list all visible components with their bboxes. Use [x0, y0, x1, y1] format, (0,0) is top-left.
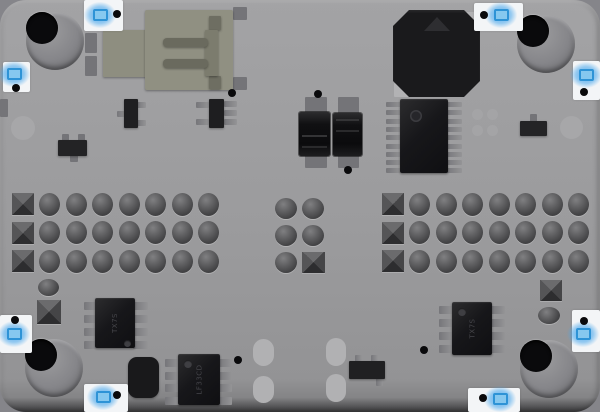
test-point [420, 346, 428, 354]
touch-indicator [484, 386, 516, 412]
header-right-pin-pad[interactable] [515, 193, 536, 216]
soic8-pin-row-pin [439, 306, 453, 314]
chip-marking: LF33CD [174, 359, 225, 401]
soic8-pin-row-pin [133, 302, 148, 310]
header-left-pin-pad[interactable] [39, 221, 60, 244]
via [472, 125, 483, 136]
header-left-pin-pad[interactable] [172, 250, 193, 273]
header-right-pin-pad[interactable] [515, 221, 536, 244]
test-point [344, 166, 352, 174]
via-ring-left-edge [11, 116, 35, 140]
pad-square[interactable] [540, 280, 562, 301]
pin1-dot [184, 360, 192, 368]
buzzer-triangle-icon [424, 17, 450, 31]
marker-dot [113, 10, 121, 18]
oval-pad [253, 376, 274, 403]
tssop-pin-row-right-pin [446, 168, 462, 173]
tssop-pin-row-right-pin [446, 119, 462, 124]
header-left-pin-pad[interactable] [172, 221, 193, 244]
soic8-pin-row-pin [491, 306, 505, 314]
mount-hole-top-left [26, 12, 84, 70]
oval-pad [326, 338, 346, 366]
usb-contact [163, 38, 208, 47]
soic8-pin-row-pin [165, 372, 179, 380]
header-right-pin-pad[interactable] [542, 193, 563, 216]
sot23-6-pad [224, 101, 237, 107]
soic8-pin-row-pin [491, 345, 505, 353]
marker-top[interactable] [84, 0, 123, 31]
via [487, 125, 498, 136]
via [472, 109, 483, 120]
usb-contact [163, 59, 208, 68]
usb-connector-tab [103, 30, 147, 77]
header-left-pin-pad[interactable] [145, 250, 166, 273]
pad-dome[interactable] [275, 198, 297, 219]
touch-indicator-core [576, 328, 591, 340]
pad-dome[interactable] [275, 252, 297, 273]
crystal-component[interactable] [128, 357, 159, 398]
pad-dome[interactable] [302, 198, 324, 219]
via [487, 109, 498, 120]
touch-indicator [485, 2, 517, 28]
sot23-pad [376, 378, 383, 386]
soic8-ic-left[interactable]: TX7S [95, 298, 135, 348]
tssop-pin-row-right-pin [446, 152, 462, 157]
pad-dome[interactable] [302, 225, 324, 246]
header-right-pin-pad[interactable] [409, 193, 430, 216]
resistor-tab [70, 155, 78, 162]
touch-indicator-core [493, 393, 508, 405]
soic8-pin-row-pin [218, 372, 232, 380]
marker-right-lower[interactable] [572, 310, 600, 352]
marker-dot [12, 84, 20, 92]
header-right-square-pad[interactable] [382, 222, 404, 244]
marker-dot [11, 316, 19, 324]
chip-marking: TX7S [446, 309, 499, 349]
tssop-pin-row-right-pin [446, 127, 462, 132]
marker-dot [580, 317, 588, 325]
header-right-pin-pad[interactable] [515, 250, 536, 273]
soic8-pin-row-pin [491, 332, 505, 340]
header-right-square-pad[interactable] [382, 250, 404, 272]
marker-top-right[interactable] [474, 3, 523, 31]
cap-polarity-stripes [302, 135, 327, 148]
mount-hole-top-left-bore [26, 12, 58, 44]
test-point [314, 90, 322, 98]
soic8-pin-row-pin [165, 384, 179, 392]
pin1-dot [458, 308, 466, 316]
usb-shield-pad [233, 7, 247, 20]
smd-resistor-left[interactable] [58, 140, 87, 156]
header-left-square-pad[interactable] [12, 193, 34, 215]
header-right-pin-pad[interactable] [489, 250, 510, 273]
soic8-pin-row-pin [133, 315, 148, 323]
soic8-pin-row-pin [133, 341, 148, 349]
header-left-pin-pad[interactable] [66, 250, 87, 273]
pad-square[interactable] [37, 300, 61, 324]
test-point [228, 89, 236, 97]
sot23-6-pad [196, 102, 209, 108]
capacitor-left[interactable] [299, 112, 330, 156]
tssop-pin-row-right-pin [446, 135, 462, 140]
header-right-pin-pad[interactable] [462, 250, 483, 273]
via-ring-right-edge [560, 116, 583, 139]
capacitor-right[interactable] [333, 113, 362, 156]
header-right-pin-pad[interactable] [489, 193, 510, 216]
header-right-square-pad[interactable] [382, 193, 404, 215]
header-right-pin-pad[interactable] [436, 250, 457, 273]
header-left-pin-pad[interactable] [66, 221, 87, 244]
soic8-ic-right[interactable]: TX7S [452, 302, 492, 355]
sot23-6-pad [224, 119, 237, 125]
tssop-pin-row-right-pin [446, 110, 462, 115]
soic8-pin-row-pin [165, 359, 179, 367]
header-right-pin-pad[interactable] [568, 221, 589, 244]
soic8-pin-row-pin [218, 384, 232, 392]
header-right-pin-pad[interactable] [409, 250, 430, 273]
cap-polarity-stripes [336, 119, 359, 132]
tssop-pin-row-right-pin [446, 144, 462, 149]
pad-square[interactable] [302, 252, 325, 273]
header-left-pin-pad[interactable] [119, 193, 140, 216]
usb-shield-pad [85, 56, 97, 76]
sot23-6-pad [196, 119, 209, 125]
soic8-pin-row-pin [133, 328, 148, 336]
touch-indicator [0, 321, 30, 347]
header-left-pin-pad[interactable] [145, 193, 166, 216]
chip-marking: TX7S [90, 303, 140, 343]
mount-hole-bottom-right-bore [520, 340, 552, 372]
pad-dome[interactable] [275, 225, 297, 246]
soic8-pin-row-pin [218, 359, 232, 367]
header-left-pin-pad[interactable] [172, 193, 193, 216]
soic8-ic-bottom[interactable]: LF33CD [178, 354, 220, 405]
header-left-pin-pad[interactable] [39, 250, 60, 273]
soic8-pin-row-pin [439, 332, 453, 340]
tssop-pin-row-right-pin [446, 102, 462, 107]
marker-left-upper[interactable] [3, 62, 30, 92]
header-left-pin-pad[interactable] [92, 193, 113, 216]
sot23-bottom[interactable] [349, 361, 385, 379]
touch-indicator-core [93, 9, 108, 21]
header-left-pin-pad[interactable] [119, 250, 140, 273]
pcb-board: TX7SLF33CDTX7S [0, 0, 600, 412]
header-left-pin-pad[interactable] [198, 250, 219, 273]
usb-shield-pad [233, 77, 247, 90]
marker-bottom-right[interactable] [468, 388, 520, 412]
soic8-pin-row-pin [491, 319, 505, 327]
header-right-pin-pad[interactable] [489, 221, 510, 244]
mount-hole-bottom-right [520, 340, 578, 398]
soic8-pin-row-pin [218, 397, 232, 405]
marker-dot [113, 391, 121, 399]
header-left-square-pad[interactable] [12, 250, 34, 272]
buzzer[interactable] [393, 10, 480, 97]
oval-pad [326, 374, 346, 402]
touch-indicator [84, 2, 116, 28]
header-right-pin-pad[interactable] [462, 193, 483, 216]
header-left-pin-pad[interactable] [39, 193, 60, 216]
sot23-transistor[interactable] [124, 99, 138, 128]
header-left-square-pad[interactable] [12, 222, 34, 244]
sot23-6-pad [224, 110, 237, 116]
header-left-pin-pad[interactable] [198, 221, 219, 244]
touch-indicator [570, 62, 600, 88]
mount-hole-top-right [517, 15, 575, 73]
marker-left-lower[interactable] [0, 315, 32, 353]
touch-indicator-core [494, 9, 509, 21]
header-right-pin-pad[interactable] [542, 250, 563, 273]
header-right-pin-pad[interactable] [568, 193, 589, 216]
header-right-pin-pad[interactable] [542, 221, 563, 244]
sot23-pad [137, 120, 146, 126]
usb-prong [209, 76, 221, 89]
edge-pad-left [0, 99, 8, 117]
smd-resistor-right[interactable] [520, 121, 547, 136]
mount-hole-bottom-left [25, 339, 83, 397]
touch-indicator-core [96, 391, 111, 403]
header-left-pin-pad[interactable] [92, 221, 113, 244]
soic8-pin-row-pin [439, 345, 453, 353]
header-left-pin-pad[interactable] [66, 193, 87, 216]
header-left-pin-pad[interactable] [145, 221, 166, 244]
header-right-pin-pad[interactable] [436, 193, 457, 216]
tssop-pin-row-right-pin [446, 160, 462, 165]
pcb-render-stage: TX7SLF33CDTX7S [0, 0, 600, 412]
touch-indicator-core [7, 328, 22, 340]
header-left-pin-pad[interactable] [119, 221, 140, 244]
tssop-ic[interactable] [400, 99, 448, 173]
header-left-pin-pad[interactable] [198, 193, 219, 216]
capacitor-pad [338, 97, 359, 114]
touch-indicator-core [579, 69, 594, 81]
sot23-pad [137, 102, 146, 108]
oval-pad [253, 339, 274, 366]
soic8-pin-row-pin [165, 397, 179, 405]
marker-right-upper[interactable] [573, 61, 600, 100]
pin1-dot [124, 340, 131, 347]
pin1-dot [410, 110, 422, 122]
pad-dome[interactable] [538, 307, 560, 324]
header-right-pin-pad[interactable] [436, 221, 457, 244]
usb-tongue-edge [205, 30, 218, 76]
usb-shield-pad [85, 33, 97, 53]
header-right-pin-pad[interactable] [462, 221, 483, 244]
marker-bottom-left[interactable] [84, 384, 128, 412]
pad-dome[interactable] [38, 279, 59, 296]
header-right-pin-pad[interactable] [568, 250, 589, 273]
soic8-pin-row-pin [439, 319, 453, 327]
header-left-pin-pad[interactable] [92, 250, 113, 273]
header-right-pin-pad[interactable] [409, 221, 430, 244]
marker-dot [480, 11, 488, 19]
marker-dot [479, 394, 487, 402]
usb-prong [209, 16, 221, 30]
sot23-6-ic[interactable] [209, 99, 224, 128]
touch-indicator-core [7, 68, 22, 80]
marker-dot [580, 88, 588, 96]
test-point [234, 356, 242, 364]
